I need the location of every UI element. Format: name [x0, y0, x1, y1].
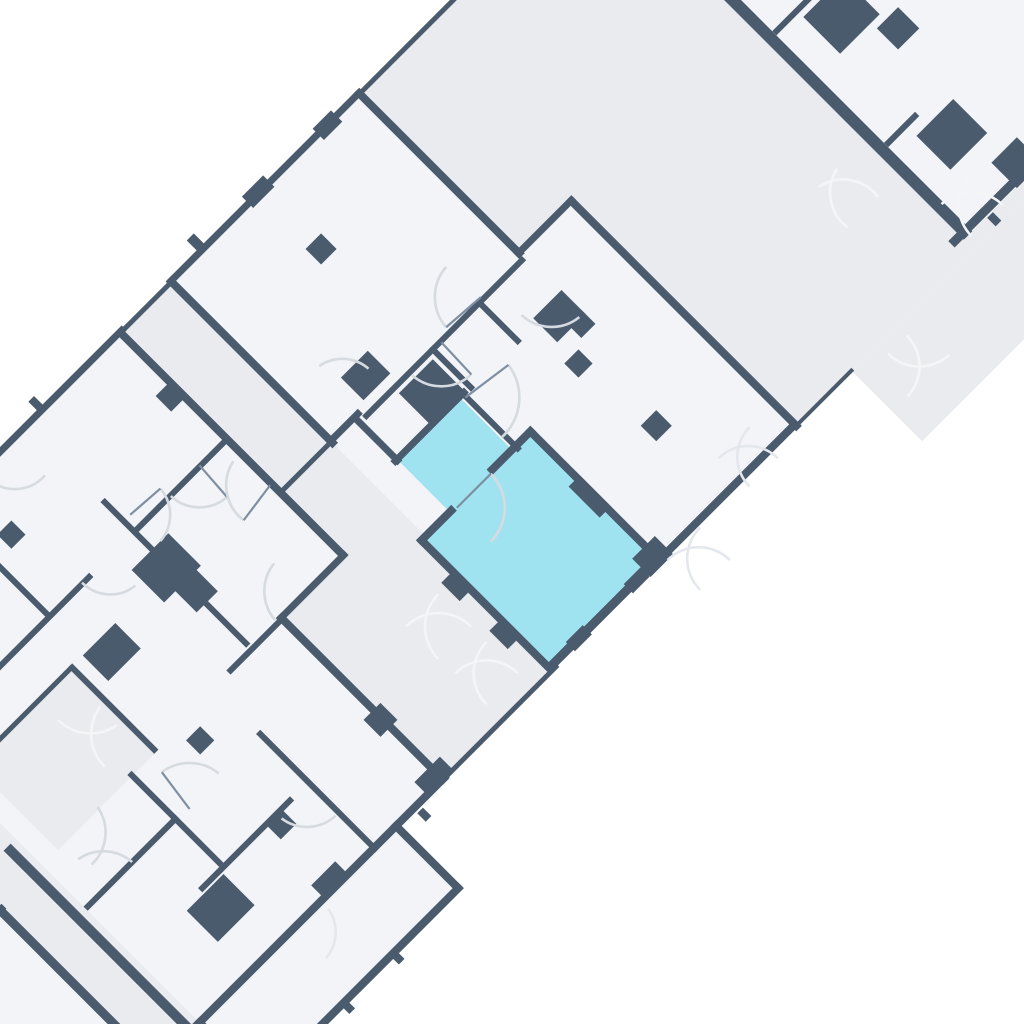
floor-plan-svg: [0, 0, 1024, 1024]
floor-plan-viewport: [0, 0, 1024, 1024]
wall-segment: [417, 808, 431, 822]
floor-plan-rotated-canvas: [0, 0, 1024, 1024]
